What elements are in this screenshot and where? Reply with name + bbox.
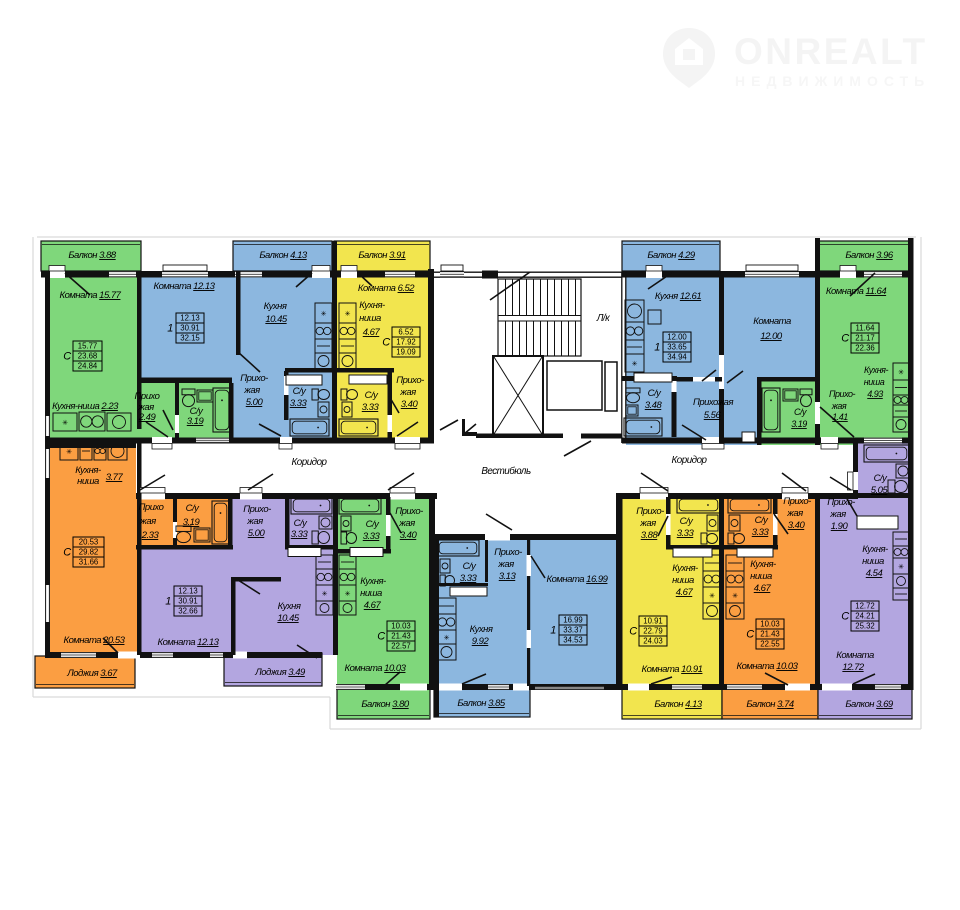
svg-text:Балкон 3.85: Балкон 3.85 [457,698,506,709]
svg-text:3.40: 3.40 [400,530,418,541]
svg-text:22.79: 22.79 [643,627,663,636]
svg-text:Кухня-: Кухня- [360,576,386,587]
svg-text:31.66: 31.66 [79,558,99,567]
svg-text:5.56: 5.56 [704,410,722,421]
svg-text:4.67: 4.67 [754,583,772,594]
svg-text:22.57: 22.57 [391,642,411,651]
svg-text:С/у: С/у [366,519,381,530]
svg-text:жая: жая [639,518,656,529]
svg-text:4.93: 4.93 [867,389,883,399]
svg-text:✳: ✳ [898,369,904,377]
svg-text:✳: ✳ [62,419,68,427]
svg-text:1: 1 [165,596,171,608]
svg-text:✳: ✳ [732,592,738,600]
svg-text:С: С [629,626,637,638]
svg-text:Балкон 3.88: Балкон 3.88 [68,250,117,261]
svg-text:Вестибюль: Вестибюль [481,466,531,477]
svg-text:✳: ✳ [345,590,351,598]
svg-text:10.03: 10.03 [391,622,411,631]
svg-text:жая: жая [398,518,415,529]
svg-text:2.49: 2.49 [138,412,157,423]
svg-text:3.33: 3.33 [290,398,308,409]
svg-text:Кухня: Кухня [470,624,493,635]
svg-text:1: 1 [654,342,660,354]
svg-text:ниша: ниша [864,377,885,387]
svg-text:С: С [382,337,390,349]
svg-text:С: С [63,351,71,363]
svg-text:Кухня-: Кухня- [75,465,103,476]
svg-text:✳: ✳ [321,310,327,318]
svg-text:Кухня-: Кухня- [864,365,888,375]
svg-text:Прихо: Прихо [139,502,164,513]
svg-text:22.36: 22.36 [855,344,875,353]
svg-text:Кухня-: Кухня- [750,559,776,570]
svg-text:Кухня-: Кухня- [862,544,888,555]
svg-text:3.33: 3.33 [362,402,380,413]
svg-text:Прихо-: Прихо- [240,373,268,384]
svg-text:Балкон 3.91: Балкон 3.91 [358,250,406,261]
svg-text:19.09: 19.09 [396,348,416,357]
svg-text:жая: жая [139,516,156,527]
svg-text:10.91: 10.91 [643,617,663,626]
svg-text:ниша: ниша [672,575,694,586]
svg-text:Прихожая: Прихожая [693,397,733,408]
svg-text:Комната: Комната [836,650,874,661]
svg-text:12.13: 12.13 [180,314,200,323]
svg-text:12.00: 12.00 [667,333,687,342]
svg-text:32.66: 32.66 [178,607,198,616]
svg-text:33.37: 33.37 [563,626,583,635]
svg-text:Кухня: Кухня [264,301,287,312]
svg-text:Прихо-: Прихо- [494,547,522,558]
svg-text:Комната 12.13: Комната 12.13 [158,637,220,648]
svg-text:Комната 6.52: Комната 6.52 [358,283,415,294]
svg-text:10.45: 10.45 [277,613,299,624]
svg-text:5.00: 5.00 [248,528,266,539]
svg-text:10.03: 10.03 [760,620,780,629]
svg-text:22.55: 22.55 [760,640,780,649]
svg-text:жая: жая [831,401,847,411]
svg-text:1: 1 [550,625,556,637]
svg-text:12.72: 12.72 [842,662,864,673]
svg-text:Лоджия 3.67: Лоджия 3.67 [66,668,118,679]
svg-text:1: 1 [167,323,173,335]
svg-text:ниша: ниша [359,313,381,324]
svg-text:ниша: ниша [862,556,884,567]
svg-text:жая: жая [829,509,846,520]
svg-text:Прихо-: Прихо- [396,375,424,386]
svg-text:✳: ✳ [632,360,638,368]
svg-text:С/у: С/у [794,407,807,417]
svg-text:С/у: С/у [293,386,308,397]
svg-text:С/у: С/у [463,561,478,572]
svg-text:1.90: 1.90 [831,521,849,532]
svg-text:Комната 12.13: Комната 12.13 [154,281,216,292]
svg-text:21.43: 21.43 [760,630,780,639]
svg-text:Комната 16.99: Комната 16.99 [547,574,609,585]
svg-text:жая: жая [243,385,260,396]
svg-text:3.77: 3.77 [106,472,124,483]
svg-text:Балкон 4.13: Балкон 4.13 [259,250,308,261]
svg-text:С: С [841,611,849,623]
svg-text:Комната 10.03: Комната 10.03 [345,663,407,674]
svg-text:24.84: 24.84 [78,362,98,371]
svg-text:С: С [63,547,71,559]
svg-text:5.00: 5.00 [246,397,264,408]
svg-text:С/у: С/у [680,516,695,527]
svg-text:Коридор: Коридор [672,455,708,466]
svg-text:4.67: 4.67 [676,587,694,598]
svg-text:3.88: 3.88 [641,530,659,541]
svg-text:С: С [377,631,385,643]
svg-text:Комната 10.03: Комната 10.03 [737,661,799,672]
svg-text:3.33: 3.33 [460,573,478,584]
svg-text:Балкон 3.96: Балкон 3.96 [845,250,894,261]
svg-text:жая: жая [786,508,803,519]
svg-text:10.45: 10.45 [265,314,287,325]
svg-text:✳: ✳ [66,448,72,456]
svg-text:ниша: ниша [750,571,772,582]
svg-text:Кухня-: Кухня- [672,563,698,574]
svg-text:Кухня 12.61: Кухня 12.61 [655,291,701,302]
svg-text:С/у: С/у [365,390,380,401]
svg-text:4.54: 4.54 [866,568,883,579]
svg-text:жая: жая [497,559,514,570]
svg-text:Кухня-ниша 2.23: Кухня-ниша 2.23 [52,401,119,412]
svg-text:Балкон 3.69: Балкон 3.69 [845,699,894,710]
svg-text:25.32: 25.32 [855,622,875,631]
svg-text:Коридор: Коридор [292,457,328,468]
svg-text:3.48: 3.48 [645,400,663,411]
svg-text:4.67: 4.67 [364,600,382,611]
svg-text:С: С [841,333,849,345]
svg-text:21.17: 21.17 [855,334,875,343]
svg-text:Лоджия 3.49: Лоджия 3.49 [254,667,306,678]
svg-text:12.13: 12.13 [178,587,198,596]
svg-text:С/у: С/у [186,503,201,514]
svg-text:12.72: 12.72 [855,602,875,611]
svg-text:Прихо-: Прихо- [636,506,664,517]
svg-text:24.21: 24.21 [855,612,875,621]
svg-text:✳: ✳ [444,634,450,642]
svg-text:30.91: 30.91 [180,324,200,333]
svg-text:11.64: 11.64 [856,324,876,333]
svg-text:3.33: 3.33 [752,527,770,538]
svg-text:3.19: 3.19 [791,419,807,429]
svg-text:16.99: 16.99 [563,616,583,625]
svg-text:Комната 11.64: Комната 11.64 [826,286,886,297]
svg-text:Прихо-: Прихо- [783,496,811,507]
svg-text:12.00: 12.00 [760,331,782,342]
svg-text:✳: ✳ [345,310,351,318]
svg-text:3.33: 3.33 [363,531,381,542]
svg-text:Прихо: Прихо [135,391,160,402]
svg-text:Комната 10.91: Комната 10.91 [642,664,703,675]
svg-text:С/у: С/у [755,515,770,526]
svg-text:✳: ✳ [898,563,904,571]
svg-text:Комната 20.53: Комната 20.53 [64,635,126,646]
svg-text:Кухня-: Кухня- [359,300,385,311]
svg-text:Прихо-: Прихо- [829,389,855,399]
svg-text:ниша: ниша [360,588,382,599]
svg-text:9.92: 9.92 [472,636,490,647]
svg-text:Прихо-: Прихо- [827,497,855,508]
svg-text:20.53: 20.53 [79,538,99,547]
svg-text:ниша: ниша [77,476,99,487]
svg-text:6.52: 6.52 [398,328,413,337]
svg-text:24.03: 24.03 [643,637,663,646]
svg-text:Прихо-: Прихо- [243,504,271,515]
svg-text:3.13: 3.13 [499,571,517,582]
svg-text:29.82: 29.82 [79,548,99,557]
svg-text:5.05: 5.05 [871,485,889,496]
svg-text:жая: жая [399,387,416,398]
svg-text:Комната 15.77: Комната 15.77 [60,290,122,301]
svg-text:Комната: Комната [753,316,791,327]
svg-text:Л/к: Л/к [596,313,610,324]
svg-text:3.33: 3.33 [291,529,309,540]
svg-text:4.67: 4.67 [363,327,381,338]
svg-text:34.94: 34.94 [667,353,687,362]
svg-text:С: С [746,629,754,641]
svg-text:жая: жая [246,516,263,527]
svg-text:3.40: 3.40 [788,520,806,531]
svg-text:1.41: 1.41 [832,412,848,422]
svg-text:33.65: 33.65 [667,343,687,352]
svg-text:34.53: 34.53 [563,636,583,645]
svg-text:✳: ✳ [709,592,715,600]
svg-text:30.91: 30.91 [178,597,198,606]
svg-text:3.19: 3.19 [183,517,201,528]
svg-text:НЕДВИЖИМОСТЬ: НЕДВИЖИМОСТЬ [735,73,930,89]
svg-text:С/у: С/у [874,473,889,484]
svg-text:С/у: С/у [294,518,309,529]
svg-text:15.77: 15.77 [78,342,98,351]
svg-text:3.19: 3.19 [187,416,205,427]
svg-text:Балкон 3.74: Балкон 3.74 [746,699,794,710]
svg-text:21.43: 21.43 [391,632,411,641]
svg-text:Кухня: Кухня [278,601,301,612]
svg-text:3.40: 3.40 [401,399,419,410]
svg-text:32.15: 32.15 [180,334,200,343]
svg-text:3.33: 3.33 [677,528,695,539]
svg-text:Балкон 4.13: Балкон 4.13 [654,699,703,710]
svg-text:2.33: 2.33 [141,530,160,541]
svg-text:Балкон 4.29: Балкон 4.29 [647,250,696,261]
svg-text:✳: ✳ [322,590,328,598]
svg-text:17.92: 17.92 [396,338,416,347]
svg-text:Прихо-: Прихо- [395,506,423,517]
svg-text:ONREALT: ONREALT [734,31,928,72]
svg-text:23.68: 23.68 [78,352,98,361]
svg-text:С/у: С/у [648,388,663,399]
svg-text:Балкон 3.80: Балкон 3.80 [361,699,410,710]
